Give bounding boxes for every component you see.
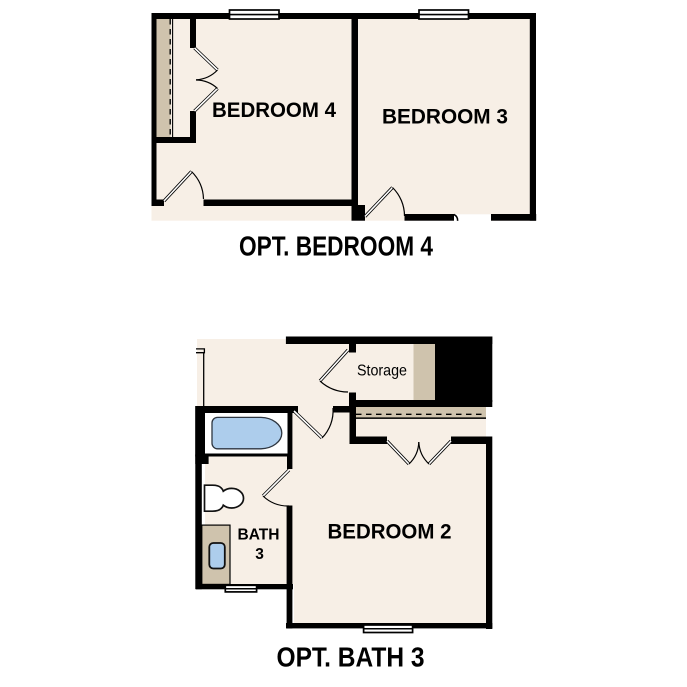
svg-text:OPT. BATH 3: OPT. BATH 3 <box>277 642 425 673</box>
svg-text:OPT. BEDROOM 4: OPT. BEDROOM 4 <box>239 231 433 262</box>
svg-text:Storage: Storage <box>357 363 407 380</box>
svg-text:BEDROOM 3: BEDROOM 3 <box>382 106 508 129</box>
svg-text:BEDROOM 4: BEDROOM 4 <box>212 99 336 122</box>
svg-text:3: 3 <box>255 546 264 563</box>
svg-text:BATH: BATH <box>238 527 280 544</box>
svg-text:BEDROOM 2: BEDROOM 2 <box>328 521 452 544</box>
